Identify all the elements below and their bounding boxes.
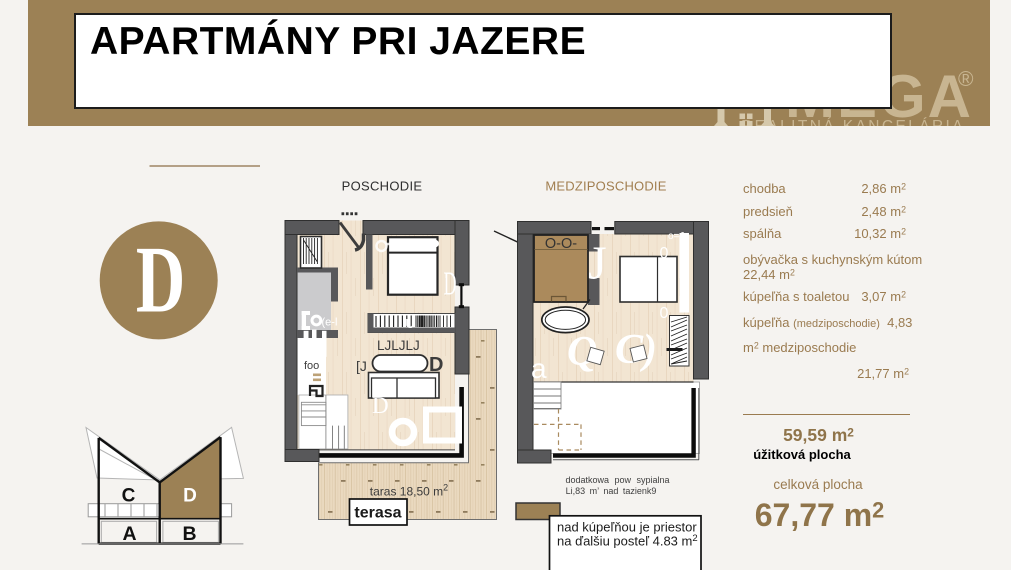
svg-text:a: a (531, 353, 547, 384)
svg-text:D: D (136, 226, 185, 332)
svg-text:0: 0 (660, 305, 669, 322)
svg-text:terasa: terasa (354, 505, 401, 522)
svg-text:0: 0 (660, 245, 669, 262)
svg-text:C: C (122, 486, 136, 507)
svg-text:MEDZIPOSCHODIE: MEDZIPOSCHODIE (545, 179, 666, 194)
svg-text:J: J (588, 237, 607, 290)
svg-text:D: D (444, 266, 457, 303)
svg-text:POSCHODIE: POSCHODIE (342, 179, 423, 194)
svg-text:D: D (372, 393, 389, 418)
svg-text:A: A (122, 523, 136, 545)
svg-text:taras 18,50 m2: taras 18,50 m2 (370, 483, 448, 499)
svg-text:o=J: o=J (668, 231, 684, 242)
svg-text:dodatkowa pow sypialna: dodatkowa pow sypialna (565, 475, 669, 485)
svg-text:O-O-: O-O- (545, 236, 577, 252)
svg-text:D: D (183, 486, 197, 507)
svg-text:B: B (182, 523, 196, 545)
svg-text:nad kúpeľňou je priestor: nad kúpeľňou je priestor (557, 520, 697, 535)
svg-text:foo: foo (304, 360, 319, 372)
svg-text:[J: [J (356, 358, 367, 374)
svg-text:U: U (406, 316, 415, 331)
svg-text:D: D (429, 354, 443, 376)
svg-text:na ďalšiu posteľ 4.83 m2: na ďalšiu posteľ 4.83 m2 (557, 533, 698, 549)
svg-text:Li,83 m’ nad tazienk9: Li,83 m’ nad tazienk9 (566, 486, 657, 496)
svg-text:(e-l: (e-l (322, 317, 338, 329)
svg-text:LJLJLJ: LJLJLJ (377, 338, 420, 353)
